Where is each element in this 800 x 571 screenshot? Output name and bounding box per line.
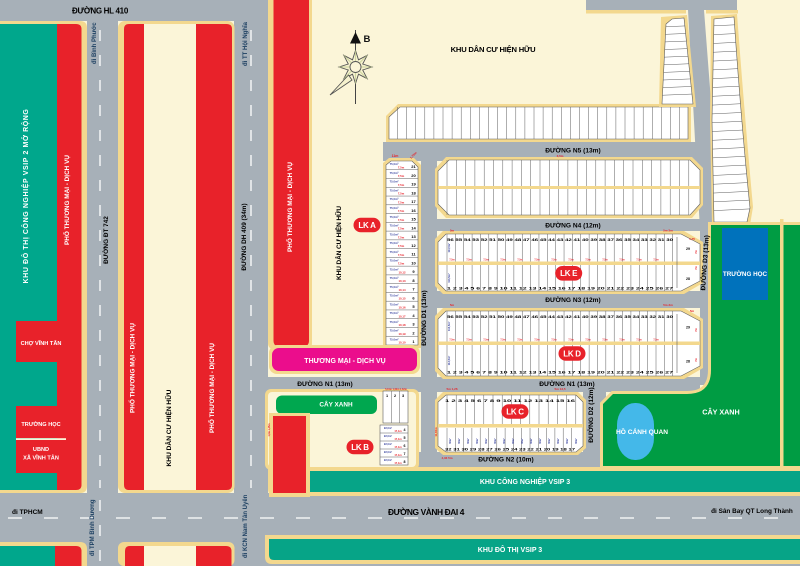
svg-text:56 55 54 53 52 51 50 49 48 47: 56 55 54 53 52 51 50 49 48 47 46 45 44 4… xyxy=(447,238,673,242)
svg-text:75,0m²: 75,0m² xyxy=(390,302,399,306)
svg-text:đi TT Hội Nghĩa: đi TT Hội Nghĩa xyxy=(243,21,249,66)
svg-text:KHU ĐÔ THỊ CÔNG NGHIỆP VSIP 2: KHU ĐÔ THỊ CÔNG NGHIỆP VSIP 2 MỞ RỘNG xyxy=(21,109,30,284)
svg-text:3,5m: 3,5m xyxy=(557,154,564,158)
svg-text:7,5m: 7,5m xyxy=(619,339,624,341)
svg-text:75,0m²: 75,0m² xyxy=(390,267,399,271)
svg-text:32 31 30 29 28 27 26 25 24 23: 32 31 30 29 28 27 26 25 24 23 22 21 20 1… xyxy=(445,448,575,452)
svg-text:60m²: 60m² xyxy=(511,438,515,444)
svg-text:10,12: 10,12 xyxy=(399,270,406,274)
svg-text:LK E: LK E xyxy=(560,269,578,278)
svg-text:75,0m²: 75,0m² xyxy=(390,285,399,289)
svg-text:ĐƯỜNG ĐT 742: ĐƯỜNG ĐT 742 xyxy=(101,216,110,264)
svg-text:1,6m 1,25m: 1,6m 1,25m xyxy=(268,424,271,437)
svg-text:3: 3 xyxy=(402,394,404,398)
svg-text:4: 4 xyxy=(404,428,406,432)
svg-text:75,0m²: 75,0m² xyxy=(390,329,399,333)
svg-text:7,5m: 7,5m xyxy=(517,339,522,341)
svg-text:113,5m²: 113,5m² xyxy=(447,243,451,253)
svg-text:ĐƯỜNG N1 (13m): ĐƯỜNG N1 (13m) xyxy=(539,379,594,388)
svg-text:10,10: 10,10 xyxy=(399,341,406,345)
svg-text:ĐƯỜNG N4 (12m): ĐƯỜNG N4 (12m) xyxy=(545,221,600,230)
svg-text:56 55 54 53 52 51 50 49 48 47: 56 55 54 53 52 51 50 49 48 47 46 45 44 4… xyxy=(447,315,673,319)
svg-text:XÃ VĨNH TÂN: XÃ VĨNH TÂN xyxy=(23,455,59,462)
svg-text:20: 20 xyxy=(411,173,416,178)
svg-text:29: 29 xyxy=(686,325,690,329)
svg-text:60m²: 60m² xyxy=(484,438,488,444)
svg-text:17: 17 xyxy=(411,199,416,204)
svg-text:ĐƯỜNG DH 409 (34m): ĐƯỜNG DH 409 (34m) xyxy=(239,203,248,270)
svg-text:7,5m: 7,5m xyxy=(483,259,488,261)
svg-text:60m²: 60m² xyxy=(538,438,542,444)
svg-text:5m 13,5: 5m 13,5 xyxy=(554,387,565,391)
svg-text:7,5m: 7,5m xyxy=(466,259,471,261)
svg-text:7,5m: 7,5m xyxy=(398,253,405,257)
svg-text:CHỢ VĨNH TÂN: CHỢ VĨNH TÂN xyxy=(21,340,62,347)
svg-text:60m²: 60m² xyxy=(448,438,452,444)
svg-text:THƯƠNG MẠI - DỊCH VỤ: THƯƠNG MẠI - DỊCH VỤ xyxy=(304,358,385,365)
svg-text:10,13: 10,13 xyxy=(399,279,406,283)
svg-text:7,5m: 7,5m xyxy=(449,339,454,341)
svg-text:10,16: 10,16 xyxy=(399,305,406,309)
svg-text:17,1m: 17,1m xyxy=(394,461,402,465)
svg-text:1,75: 1,75 xyxy=(689,237,695,241)
svg-text:113,5m²: 113,5m² xyxy=(447,356,451,366)
svg-text:14: 14 xyxy=(411,225,416,230)
svg-text:7,5m: 7,5m xyxy=(398,262,405,266)
svg-text:KHU DÂN CƯ HIỆN HỮU: KHU DÂN CƯ HIỆN HỮU xyxy=(164,389,173,466)
svg-text:5m 3m: 5m 3m xyxy=(663,303,673,307)
svg-text:13: 13 xyxy=(411,234,416,239)
svg-text:7,5m: 7,5m xyxy=(602,259,607,261)
svg-text:11m: 11m xyxy=(392,154,399,158)
svg-text:60m²: 60m² xyxy=(475,438,479,444)
svg-text:7,5m: 7,5m xyxy=(534,259,539,261)
svg-text:60m²: 60m² xyxy=(502,438,506,444)
svg-text:10,14: 10,14 xyxy=(399,288,406,292)
svg-text:KHU DÂN CƯ HIỆN HỮU: KHU DÂN CƯ HIỆN HỮU xyxy=(334,206,343,280)
svg-text:7,5m: 7,5m xyxy=(398,235,405,239)
svg-text:ĐƯỜNG VÀNH ĐAI 4: ĐƯỜNG VÀNH ĐAI 4 xyxy=(388,506,465,517)
svg-text:5: 5 xyxy=(404,436,406,440)
svg-text:KHU CÔNG NGHIỆP VSIP 3: KHU CÔNG NGHIỆP VSIP 3 xyxy=(480,477,570,486)
svg-text:75,0m²: 75,0m² xyxy=(390,294,399,298)
svg-text:60m²: 60m² xyxy=(493,438,497,444)
svg-text:CÂY XANH: CÂY XANH xyxy=(319,400,353,409)
svg-text:TRƯỜNG HỌC: TRƯỜNG HỌC xyxy=(21,420,60,428)
svg-text:ĐƯỜNG HL 410: ĐƯỜNG HL 410 xyxy=(72,7,129,16)
svg-text:92,0m²: 92,0m² xyxy=(384,426,392,430)
svg-text:ĐƯỜNG N2 (10m): ĐƯỜNG N2 (10m) xyxy=(478,455,533,464)
svg-text:5,10m 1,62m 1,62m: 5,10m 1,62m 1,62m xyxy=(385,388,407,391)
svg-text:KHU DÂN CƯ HIỆN HỮU: KHU DÂN CƯ HIỆN HỮU xyxy=(451,45,536,54)
svg-text:7,5m: 7,5m xyxy=(449,259,454,261)
svg-text:UBND: UBND xyxy=(33,447,49,453)
svg-text:7,5m: 7,5m xyxy=(619,259,624,261)
svg-text:7,5m: 7,5m xyxy=(551,339,556,341)
svg-text:17,1m: 17,1m xyxy=(394,453,402,457)
svg-text:7,5m: 7,5m xyxy=(636,339,641,341)
svg-text:7,5m: 7,5m xyxy=(602,339,607,341)
svg-text:75,0m²: 75,0m² xyxy=(390,320,399,324)
svg-text:đi Sân Bay QT Long Thành: đi Sân Bay QT Long Thành xyxy=(711,508,793,515)
svg-text:92,0m²: 92,0m² xyxy=(384,450,392,454)
svg-text:16: 16 xyxy=(411,208,416,213)
svg-text:75,0m²: 75,0m² xyxy=(390,311,399,315)
svg-text:7,5m: 7,5m xyxy=(466,339,471,341)
svg-text:đi TPHCM: đi TPHCM xyxy=(12,509,43,516)
svg-text:17,1m: 17,1m xyxy=(394,437,402,441)
svg-text:1 2 3 4 5 6 7 8 9 10 11 12 13: 1 2 3 4 5 6 7 8 9 10 11 12 13 14 15 16 1… xyxy=(447,287,673,291)
svg-text:7,5m: 7,5m xyxy=(398,244,405,248)
svg-text:đi Bình Phước: đi Bình Phước xyxy=(92,22,98,64)
svg-text:7,5m: 7,5m xyxy=(534,339,539,341)
svg-text:1: 1 xyxy=(386,394,388,398)
svg-text:LK A: LK A xyxy=(358,221,376,230)
svg-text:10: 10 xyxy=(411,260,416,265)
svg-text:7,5m: 7,5m xyxy=(568,339,573,341)
svg-text:7,5m: 7,5m xyxy=(398,209,405,213)
svg-text:7,5m: 7,5m xyxy=(636,259,641,261)
svg-text:LK D: LK D xyxy=(563,349,581,358)
svg-text:10,15: 10,15 xyxy=(399,297,406,301)
svg-text:60m²: 60m² xyxy=(466,438,470,444)
svg-text:11,60m: 11,60m xyxy=(434,427,438,437)
svg-text:5m 1,26: 5m 1,26 xyxy=(446,387,457,391)
svg-text:60m²: 60m² xyxy=(565,438,569,444)
svg-text:ĐƯỜNG N3 (12m): ĐƯỜNG N3 (12m) xyxy=(545,295,600,304)
svg-text:7,5m: 7,5m xyxy=(500,259,505,261)
svg-text:B: B xyxy=(364,34,371,45)
svg-text:10,18: 10,18 xyxy=(399,323,406,327)
svg-text:5m: 5m xyxy=(690,309,695,313)
svg-text:7,5m: 7,5m xyxy=(398,192,405,196)
svg-text:7,5m: 7,5m xyxy=(398,165,405,169)
svg-text:29: 29 xyxy=(686,247,690,251)
svg-text:17,1m: 17,1m xyxy=(394,429,402,433)
svg-text:2: 2 xyxy=(394,394,396,398)
svg-text:ĐƯỜNG D2 (12m): ĐƯỜNG D2 (12m) xyxy=(586,387,595,442)
svg-text:10,19: 10,19 xyxy=(399,332,406,336)
svg-text:7,5m: 7,5m xyxy=(585,339,590,341)
svg-text:ĐƯỜNG D1 (13m): ĐƯỜNG D1 (13m) xyxy=(419,290,428,345)
svg-text:28: 28 xyxy=(686,277,690,281)
svg-text:đi KCN Nam Tân Uyên: đi KCN Nam Tân Uyên xyxy=(243,494,249,558)
svg-text:7,5m: 7,5m xyxy=(653,339,658,341)
svg-text:21: 21 xyxy=(411,164,416,169)
svg-text:60m²: 60m² xyxy=(520,438,524,444)
svg-text:LK B: LK B xyxy=(351,443,369,452)
svg-text:6: 6 xyxy=(404,444,406,448)
svg-text:đi TPM Bình Dương: đi TPM Bình Dương xyxy=(90,499,96,556)
svg-text:60m²: 60m² xyxy=(556,438,560,444)
svg-text:28: 28 xyxy=(686,360,690,364)
svg-text:17,1m: 17,1m xyxy=(394,445,402,449)
svg-text:113,5m²: 113,5m² xyxy=(447,321,451,331)
svg-text:7,5m: 7,5m xyxy=(398,174,405,178)
svg-text:19: 19 xyxy=(411,182,416,187)
svg-text:7,5m: 7,5m xyxy=(398,218,405,222)
svg-text:7,5m: 7,5m xyxy=(568,259,573,261)
svg-text:60m²: 60m² xyxy=(457,438,461,444)
svg-text:60m²: 60m² xyxy=(574,438,578,444)
svg-text:5m 3m: 5m 3m xyxy=(663,229,673,233)
svg-text:92,0m²: 92,0m² xyxy=(384,442,392,446)
svg-text:60m²: 60m² xyxy=(529,438,533,444)
svg-text:KHU ĐÔ THỊ VSIP 3: KHU ĐÔ THỊ VSIP 3 xyxy=(478,545,543,554)
svg-text:7,5m: 7,5m xyxy=(398,227,405,231)
svg-text:10,17: 10,17 xyxy=(399,314,406,318)
svg-text:ĐƯỜNG N1 (13m): ĐƯỜNG N1 (13m) xyxy=(297,379,352,388)
svg-text:18: 18 xyxy=(411,190,416,195)
svg-text:CÂY XANH: CÂY XANH xyxy=(702,408,739,417)
svg-text:75,0m²: 75,0m² xyxy=(390,337,399,341)
svg-text:92,0m²: 92,0m² xyxy=(384,458,392,462)
svg-text:ĐƯỜNG N5 (13m): ĐƯỜNG N5 (13m) xyxy=(545,146,600,155)
svg-text:113,5m²: 113,5m² xyxy=(447,273,451,283)
svg-text:5m: 5m xyxy=(450,229,455,233)
svg-text:7,5m: 7,5m xyxy=(398,183,405,187)
svg-text:7: 7 xyxy=(404,452,406,456)
svg-text:7,5m: 7,5m xyxy=(585,259,590,261)
svg-text:7,5m: 7,5m xyxy=(517,259,522,261)
svg-text:7,5m: 7,5m xyxy=(483,339,488,341)
svg-text:LK C: LK C xyxy=(506,407,524,416)
svg-text:92,0m²: 92,0m² xyxy=(384,434,392,438)
svg-text:75,0m²: 75,0m² xyxy=(390,276,399,280)
svg-text:1 2 3 4 5 6 7 8 9 10 11 12 13: 1 2 3 4 5 6 7 8 9 10 11 12 13 14 15 16 1… xyxy=(447,371,673,375)
svg-text:8: 8 xyxy=(404,460,406,464)
svg-text:60m²: 60m² xyxy=(547,438,551,444)
svg-text:7,5m: 7,5m xyxy=(653,259,658,261)
svg-text:5m: 5m xyxy=(450,303,455,307)
svg-text:7,5m: 7,5m xyxy=(500,339,505,341)
svg-text:7,5m: 7,5m xyxy=(551,259,556,261)
svg-text:7,5m: 7,5m xyxy=(398,200,405,204)
svg-text:TRƯỜNG HỌC: TRƯỜNG HỌC xyxy=(723,269,768,278)
svg-text:4,33 5m: 4,33 5m xyxy=(441,456,452,460)
svg-text:15: 15 xyxy=(411,217,416,222)
svg-text:12: 12 xyxy=(411,243,416,248)
svg-text:1 2 3 4 5 6 7 8 9 10 11 12 13: 1 2 3 4 5 6 7 8 9 10 11 12 13 14 15 16 xyxy=(445,399,575,403)
